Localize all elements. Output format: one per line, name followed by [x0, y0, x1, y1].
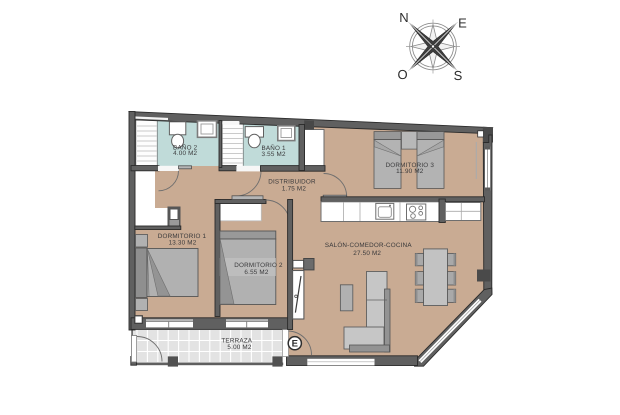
svg-text:1.75 M2: 1.75 M2 — [282, 186, 306, 193]
svg-text:4.00 M2: 4.00 M2 — [173, 150, 197, 157]
svg-text:E: E — [458, 16, 467, 31]
svg-text:O: O — [397, 67, 407, 82]
svg-text:DORMITORIO 2: DORMITORIO 2 — [234, 262, 283, 269]
svg-text:DISTRIBUIDOR: DISTRIBUIDOR — [268, 179, 316, 186]
svg-text:3.55 M2: 3.55 M2 — [262, 151, 286, 158]
svg-text:E: E — [292, 339, 298, 350]
svg-text:11.90 M2: 11.90 M2 — [396, 168, 424, 175]
svg-text:5.00 M2: 5.00 M2 — [227, 344, 251, 351]
svg-text:N: N — [399, 10, 408, 25]
svg-text:27.50 M2: 27.50 M2 — [353, 250, 381, 257]
svg-text:13.30 M2: 13.30 M2 — [169, 239, 197, 246]
svg-text:6.55 M2: 6.55 M2 — [244, 269, 268, 276]
svg-text:S: S — [454, 68, 463, 83]
svg-text:SALÓN-COMEDOR-COCINA: SALÓN-COMEDOR-COCINA — [325, 241, 413, 249]
